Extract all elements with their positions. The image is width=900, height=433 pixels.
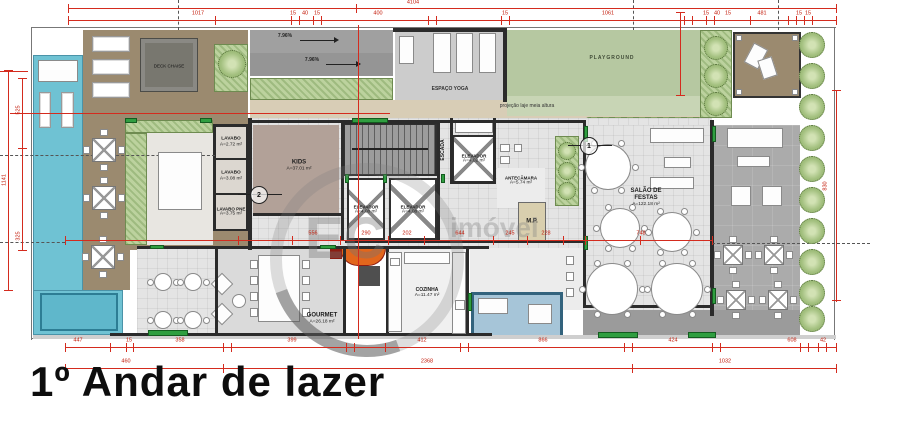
dimension-tick: [65, 343, 66, 352]
chair: [774, 281, 782, 288]
chair: [770, 236, 778, 243]
yoga-window-3: [479, 33, 496, 73]
dimension-tick: [68, 4, 69, 13]
dimension-label: 15: [725, 11, 731, 17]
dimension-tick: [812, 16, 813, 25]
dimension-line: [836, 90, 837, 302]
chair: [578, 164, 585, 171]
stair-rail: [352, 148, 428, 150]
projection-note: projeção laje meia altura: [500, 103, 554, 109]
wall-segment: [393, 28, 507, 32]
pergola-post: [736, 89, 742, 95]
chair: [118, 194, 125, 202]
counter: [455, 300, 465, 310]
chair: [632, 164, 639, 171]
wall-segment: [503, 28, 507, 102]
dimension-tick: [826, 343, 827, 352]
dimension-label: 290: [361, 231, 370, 237]
dimension-label: 1032: [719, 359, 731, 365]
planter-strip-left: [125, 133, 147, 245]
bench-table: [762, 186, 782, 206]
chair: [605, 245, 612, 252]
wall-segment: [213, 124, 216, 231]
bench-table: [731, 186, 751, 206]
dimension-label: 644: [455, 231, 464, 237]
chair: [759, 296, 766, 304]
axis-dash-line: [712, 243, 870, 244]
dimension-tick: [632, 343, 633, 352]
dimension-label: 15: [290, 11, 296, 17]
lot-line-left: [31, 27, 32, 340]
dimension-tick: [4, 70, 13, 71]
ref-circle-2: 2: [250, 186, 268, 204]
wall-segment: [213, 229, 250, 231]
yoga-window-2: [456, 33, 473, 73]
dimension-label: 412: [417, 338, 426, 344]
ramp-arrow-upper: [300, 40, 334, 41]
dimension-tick: [501, 16, 502, 25]
room-area: A=37.01 m²: [287, 167, 312, 173]
dimension-line: [68, 8, 836, 9]
wall-segment: [710, 120, 714, 316]
dimension-tick: [712, 343, 713, 352]
tree-icon: [799, 156, 825, 182]
chair: [693, 229, 700, 236]
room-label-kids: KIDSA=37.01 m²: [287, 160, 312, 173]
room-area: A=2.72 m²: [220, 142, 242, 148]
ref-number-2: 2: [257, 192, 261, 199]
chair: [100, 164, 108, 171]
dimension-tick: [428, 16, 429, 25]
dimension-label: 15: [502, 11, 508, 17]
chair: [755, 251, 762, 259]
dimension-label: 15: [805, 11, 811, 17]
planter-box: [125, 118, 137, 123]
dimension-label: 481: [757, 11, 766, 17]
dimension-label: 400: [373, 11, 382, 17]
chair: [704, 286, 711, 293]
dimension-tick: [18, 148, 27, 149]
tree-icon: [558, 162, 576, 180]
dimension-tick: [624, 343, 625, 352]
tree-icon: [799, 218, 825, 244]
dimension-label: 42: [820, 338, 826, 344]
chair: [579, 286, 586, 293]
dimension-label: 228: [541, 231, 550, 237]
dimension-line: [8, 70, 9, 290]
chair: [100, 129, 108, 136]
chair: [117, 253, 124, 261]
dimension-tick: [750, 16, 751, 25]
dimension-line: [22, 78, 23, 250]
dimension-label: 399: [287, 338, 296, 344]
ref-number-1: 1: [587, 143, 591, 150]
square-table: [91, 245, 115, 269]
dimension-tick: [133, 343, 134, 352]
dimension-tick: [712, 236, 713, 245]
dimension-label: 15: [796, 11, 802, 17]
chair: [748, 296, 755, 304]
yoga-window-1: [433, 33, 451, 73]
tree-icon: [799, 187, 825, 213]
dimension-tick: [126, 343, 127, 352]
dimension-tick: [640, 236, 641, 245]
chair: [203, 317, 210, 324]
dimension-label: 358: [175, 338, 184, 344]
dimension-tick: [563, 236, 564, 245]
bench-table: [664, 157, 691, 168]
dimension-label: 4104: [407, 0, 419, 6]
dimension-label: 245: [505, 231, 514, 237]
wall-segment: [450, 118, 453, 184]
square-table: [768, 290, 788, 310]
wall-segment: [466, 248, 469, 335]
planter-box: [441, 174, 445, 183]
dimension-tick: [832, 90, 841, 91]
drawing-title: 1º Andar de lazer: [30, 358, 385, 406]
round-table: [651, 263, 703, 315]
dimension-label: 447: [73, 338, 82, 344]
round-table: [154, 311, 172, 329]
dimension-tick: [313, 16, 314, 25]
dimension-tick: [720, 343, 721, 352]
chair: [177, 317, 184, 324]
dimension-label: 325: [16, 231, 22, 240]
room-label-lavabo-a: LAVABOA=2.72 m²: [220, 136, 242, 148]
dimension-label: 866: [538, 338, 547, 344]
room-name: SALÃO DE FESTAS: [630, 188, 661, 202]
dimension-tick: [18, 78, 27, 79]
dimension-line: [358, 25, 359, 339]
chair: [774, 312, 782, 319]
wall-segment: [213, 158, 250, 160]
ramp-planter: [250, 78, 393, 100]
bench-table: [650, 128, 704, 143]
chair: [591, 187, 598, 194]
round-table: [586, 263, 638, 315]
room-area: A=3.75 m²: [217, 212, 246, 218]
dimension-tick: [238, 236, 239, 245]
tree-icon: [704, 92, 728, 116]
dimension-tick: [676, 95, 685, 96]
dimension-label: 556: [308, 231, 317, 237]
dimension-label: 15: [126, 338, 132, 344]
wall-segment: [213, 124, 250, 127]
dimension-label: 424: [668, 338, 677, 344]
dimension-label: 40: [302, 11, 308, 17]
dimension-tick: [299, 16, 300, 25]
dimension-tick: [818, 343, 819, 352]
axis-dash-line: [178, 0, 179, 30]
room-label-salao: SALÃO DE FESTASA=122.18 m²: [630, 188, 661, 208]
bench-table: [737, 156, 770, 167]
chair: [118, 146, 125, 154]
dimension-tick: [836, 364, 837, 373]
dimension-tick: [436, 16, 437, 25]
room-name: LAVABO: [220, 170, 242, 176]
tree-icon: [799, 32, 825, 58]
square-table: [92, 186, 116, 210]
counter: [500, 156, 510, 164]
pergola-post: [792, 35, 798, 41]
chair: [629, 245, 636, 252]
yoga-window-small: [399, 36, 414, 64]
room-name: ESCADA: [440, 139, 446, 160]
tree-icon: [799, 280, 825, 306]
dimension-tick: [632, 364, 633, 373]
room-area: A=3.08 m²: [220, 176, 242, 182]
square-table: [92, 138, 116, 162]
dimension-tick: [4, 290, 13, 291]
dimension-tick: [676, 12, 685, 13]
planter-box: [712, 288, 716, 304]
counter: [500, 144, 510, 152]
dimension-tick: [223, 343, 224, 352]
chair: [717, 296, 724, 304]
planter-box: [148, 330, 188, 336]
planter-box: [688, 332, 716, 338]
tree-icon: [799, 94, 825, 120]
chair: [618, 187, 625, 194]
dimension-tick: [493, 236, 494, 245]
tree-icon: [704, 64, 728, 88]
chair: [732, 281, 740, 288]
dimension-tick: [836, 16, 837, 25]
dimension-line: [10, 113, 390, 114]
chaise-lounge: [39, 92, 51, 128]
dimension-label: 748: [636, 231, 645, 237]
tree-icon: [799, 63, 825, 89]
dimension-tick: [800, 343, 801, 352]
dimension-label: 525: [16, 105, 22, 114]
axis-dash-line: [778, 0, 779, 30]
chair: [203, 279, 210, 286]
wall-segment: [493, 118, 496, 184]
wall-segment: [215, 248, 218, 335]
dimension-tick: [18, 250, 27, 251]
dimension-tick: [714, 16, 715, 25]
dimension-tick: [527, 236, 528, 245]
room-area: A=4.02 m²: [462, 159, 487, 165]
watermark-monogram: EC: [305, 205, 386, 272]
room-label-elevador-c: ELEVADORA=4.02 m²: [462, 153, 487, 164]
chair: [250, 276, 258, 285]
dimension-tick: [836, 343, 837, 352]
chair: [729, 236, 737, 243]
chair: [657, 249, 664, 256]
dimension-tick: [706, 16, 707, 25]
square-table: [726, 290, 746, 310]
chair: [250, 292, 258, 301]
tree-icon: [558, 182, 576, 200]
chair: [82, 253, 89, 261]
dimension-tick: [509, 16, 510, 25]
dimension-label: 1141: [2, 174, 8, 186]
dimension-tick: [836, 4, 837, 13]
dimension-tick: [340, 236, 341, 245]
room-label-lavabo-b: LAVABOA=3.08 m²: [220, 170, 242, 182]
dimension-tick: [684, 16, 685, 25]
round-table: [600, 208, 640, 248]
planter-box: [200, 118, 212, 123]
tree-icon: [218, 50, 246, 78]
room-label-antecamara: ANTECÂMARAA=5.74 m²: [505, 175, 537, 186]
playground-label: PLAYGROUND: [589, 55, 634, 61]
dimension-label: 202: [402, 231, 411, 237]
dimension-line: [680, 12, 681, 96]
chair: [250, 308, 258, 317]
chair: [177, 279, 184, 286]
tree-icon: [799, 249, 825, 275]
dimension-line: [0, 71, 28, 72]
room-name: LAVABO: [220, 136, 242, 142]
dimension-tick: [291, 16, 292, 25]
planter-box: [598, 332, 638, 338]
ramp-lower: [250, 53, 393, 76]
room-label-lavabo-pne: LAVABO PNEA=3.75 m²: [217, 206, 246, 217]
chair: [786, 251, 793, 259]
floorplan-canvas: DECK CHAISE 7.96% 7.96% ESPAÇO YOGA PLAY…: [0, 0, 900, 433]
dimension-tick: [692, 16, 693, 25]
swimming-pool: [40, 293, 118, 331]
ramp-upper: [250, 30, 393, 53]
chair: [147, 279, 154, 286]
right-terrace: [712, 125, 800, 315]
tree-icon: [799, 306, 825, 332]
dimension-tick: [796, 16, 797, 25]
dimension-label: 15: [314, 11, 320, 17]
round-table: [154, 273, 172, 291]
chair: [745, 251, 752, 259]
ref-circle-1: 1: [580, 137, 598, 155]
dimension-tick: [110, 343, 111, 352]
chair: [566, 288, 574, 297]
chair: [83, 194, 90, 202]
round-table: [652, 212, 692, 252]
dimension-tick: [65, 236, 66, 245]
dimension-tick: [346, 343, 347, 352]
dimension-tick: [788, 16, 789, 25]
wall-segment: [246, 124, 250, 231]
chair: [729, 267, 737, 274]
pergola-post: [736, 35, 742, 41]
dimension-label: 1061: [602, 11, 614, 17]
counter: [478, 298, 508, 314]
chair: [83, 146, 90, 154]
planter-box: [468, 293, 472, 311]
dimension-tick: [468, 343, 469, 352]
square-table: [764, 245, 784, 265]
ramp-slope-upper-label: 7.96%: [278, 33, 292, 39]
chair: [99, 271, 107, 278]
square-table: [723, 245, 743, 265]
chair: [147, 317, 154, 324]
tree-icon: [799, 125, 825, 151]
chair: [250, 260, 258, 269]
chair: [681, 249, 688, 256]
chaise-lounge: [92, 59, 130, 75]
dimension-tick: [231, 343, 232, 352]
dimension-tick: [832, 300, 841, 301]
dimension-tick: [321, 16, 322, 25]
dimension-tick: [424, 236, 425, 245]
chair: [770, 267, 778, 274]
dimension-tick: [385, 343, 386, 352]
axis-dash-line: [0, 242, 65, 243]
chaise-lounge: [92, 36, 130, 52]
pergola-post: [792, 89, 798, 95]
tree-icon: [704, 36, 728, 60]
wall-segment: [450, 181, 496, 184]
chair: [644, 286, 651, 293]
dimension-label: 608: [787, 338, 796, 344]
bench-table: [727, 128, 783, 148]
chair: [593, 225, 600, 232]
ramp-slope-lower-label: 7.96%: [305, 57, 319, 63]
planter-box: [712, 126, 716, 142]
chaise-lounge: [61, 92, 74, 128]
deck-chaise-label: DECK CHAISE: [154, 64, 185, 69]
pool-steps: [38, 60, 78, 82]
dimension-label: 40: [714, 11, 720, 17]
dimension-label: 830: [823, 181, 829, 190]
chair: [566, 272, 574, 281]
dimension-tick: [68, 16, 69, 25]
dimension-tick: [804, 16, 805, 25]
lot-line-right: [834, 27, 835, 340]
chair: [100, 177, 108, 184]
chair: [566, 256, 574, 265]
dimension-tick: [808, 343, 809, 352]
dimension-tick: [354, 343, 355, 352]
room-area: A=122.18 m²: [630, 202, 661, 208]
room-label-escada: ESCADA: [440, 139, 446, 160]
chair: [790, 296, 797, 304]
round-table: [184, 273, 202, 291]
round-table: [184, 311, 202, 329]
dimension-line: [68, 20, 836, 21]
dimension-label: 1017: [192, 11, 204, 17]
chair: [714, 251, 721, 259]
gourmet-pouf-round: [232, 294, 246, 308]
planter-box: [150, 245, 164, 249]
dimension-tick: [292, 236, 293, 245]
dimension-tick: [388, 236, 389, 245]
axis-dash-line: [633, 0, 634, 30]
dimension-label: 15: [703, 11, 709, 17]
chair: [100, 212, 108, 219]
dimension-tick: [585, 236, 586, 245]
ramp-arrow-lower: [326, 64, 356, 65]
chair: [732, 312, 740, 319]
dimension-tick: [215, 16, 216, 25]
counter: [158, 152, 202, 210]
room-area: A=5.74 m²: [505, 181, 537, 187]
counter: [514, 144, 522, 152]
counter: [528, 304, 552, 324]
dimension-tick: [356, 4, 357, 13]
yoga-label: ESPAÇO YOGA: [432, 86, 469, 92]
ramp-arrow-upper-head: [334, 37, 339, 43]
dimension-label: 2368: [421, 359, 433, 365]
dimension-tick: [460, 343, 461, 352]
playground-lawn: [507, 30, 700, 96]
chaise-lounge: [92, 82, 130, 98]
